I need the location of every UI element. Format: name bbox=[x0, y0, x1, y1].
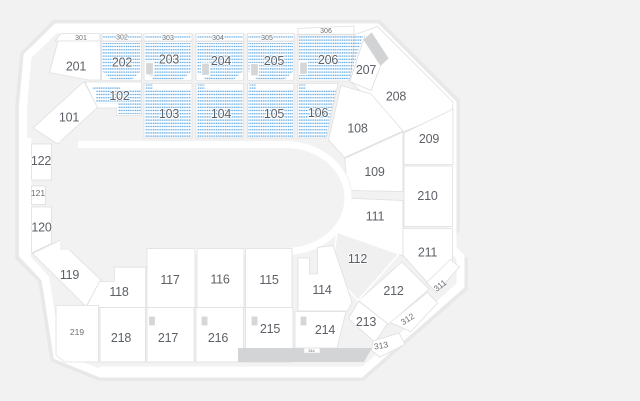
svg-text:210: 210 bbox=[417, 189, 438, 203]
svg-text:103: 103 bbox=[159, 107, 180, 121]
svg-text:114: 114 bbox=[312, 283, 332, 297]
svg-text:215: 215 bbox=[260, 322, 281, 336]
svg-text:217: 217 bbox=[158, 331, 179, 345]
svg-text:204: 204 bbox=[211, 54, 232, 68]
svg-text:303: 303 bbox=[162, 35, 174, 42]
svg-text:106: 106 bbox=[308, 106, 329, 120]
svg-text:121: 121 bbox=[31, 188, 45, 198]
svg-text:301: 301 bbox=[75, 35, 87, 42]
svg-text:101: 101 bbox=[59, 111, 80, 125]
svg-text:102: 102 bbox=[109, 89, 130, 103]
svg-text:118: 118 bbox=[109, 285, 129, 299]
svg-text:213: 213 bbox=[356, 315, 377, 329]
svg-text:209: 209 bbox=[419, 132, 440, 146]
svg-text:211: 211 bbox=[418, 246, 438, 260]
svg-text:202: 202 bbox=[112, 56, 133, 70]
svg-text:216: 216 bbox=[208, 331, 229, 345]
svg-text:117: 117 bbox=[160, 273, 180, 287]
svg-text:203: 203 bbox=[159, 53, 180, 67]
svg-text:111: 111 bbox=[366, 210, 385, 224]
svg-text:214: 214 bbox=[315, 323, 336, 337]
svg-text:206: 206 bbox=[318, 53, 339, 67]
svg-text:208: 208 bbox=[386, 90, 407, 104]
svg-text:207: 207 bbox=[356, 63, 377, 77]
svg-text:115: 115 bbox=[259, 273, 279, 287]
svg-text:120: 120 bbox=[31, 221, 52, 235]
svg-text:122: 122 bbox=[31, 154, 52, 168]
svg-text:305: 305 bbox=[261, 35, 273, 42]
svg-text:306: 306 bbox=[320, 28, 332, 35]
svg-text:201: 201 bbox=[66, 60, 87, 74]
svg-text:109: 109 bbox=[364, 165, 385, 179]
svg-text:314: 314 bbox=[308, 349, 314, 353]
svg-text:218: 218 bbox=[111, 331, 132, 345]
svg-text:116: 116 bbox=[210, 273, 230, 287]
svg-text:104: 104 bbox=[211, 107, 232, 121]
svg-text:119: 119 bbox=[60, 268, 80, 282]
svg-text:304: 304 bbox=[212, 35, 224, 42]
svg-text:219: 219 bbox=[70, 327, 84, 337]
svg-text:302: 302 bbox=[116, 35, 128, 42]
svg-text:205: 205 bbox=[264, 54, 285, 68]
svg-text:112: 112 bbox=[348, 252, 368, 266]
svg-text:108: 108 bbox=[347, 122, 368, 136]
svg-text:212: 212 bbox=[383, 284, 404, 298]
svg-text:105: 105 bbox=[264, 107, 285, 121]
